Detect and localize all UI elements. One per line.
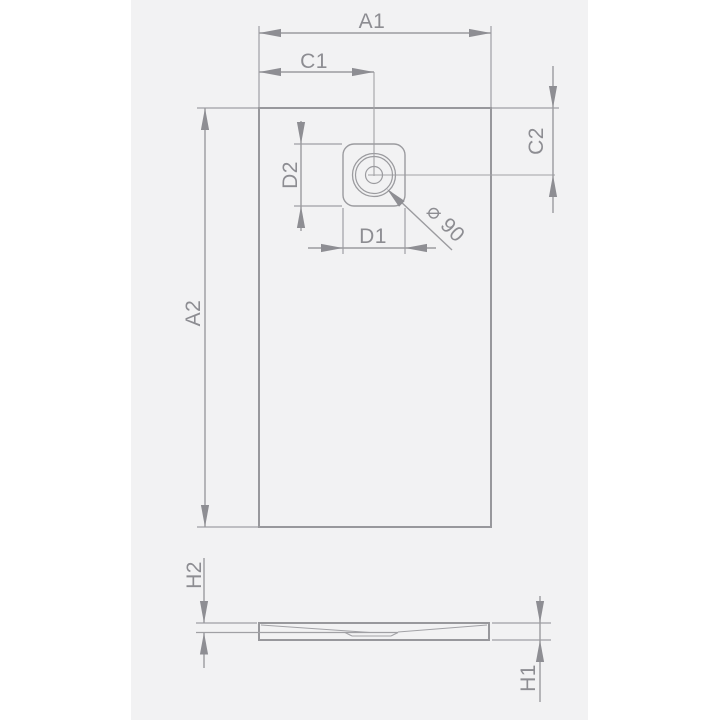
label-c1: C1 — [300, 50, 328, 73]
label-c2: C2 — [525, 127, 548, 155]
label-a2: A2 — [182, 300, 205, 327]
label-h2: H2 — [183, 561, 206, 589]
shower-tray-dimension-diagram: A1 C1 A2 C2 — [0, 0, 720, 720]
label-d1: D1 — [359, 225, 387, 248]
label-d2: D2 — [279, 161, 302, 189]
label-a1: A1 — [359, 10, 386, 33]
label-h1: H1 — [517, 664, 540, 692]
